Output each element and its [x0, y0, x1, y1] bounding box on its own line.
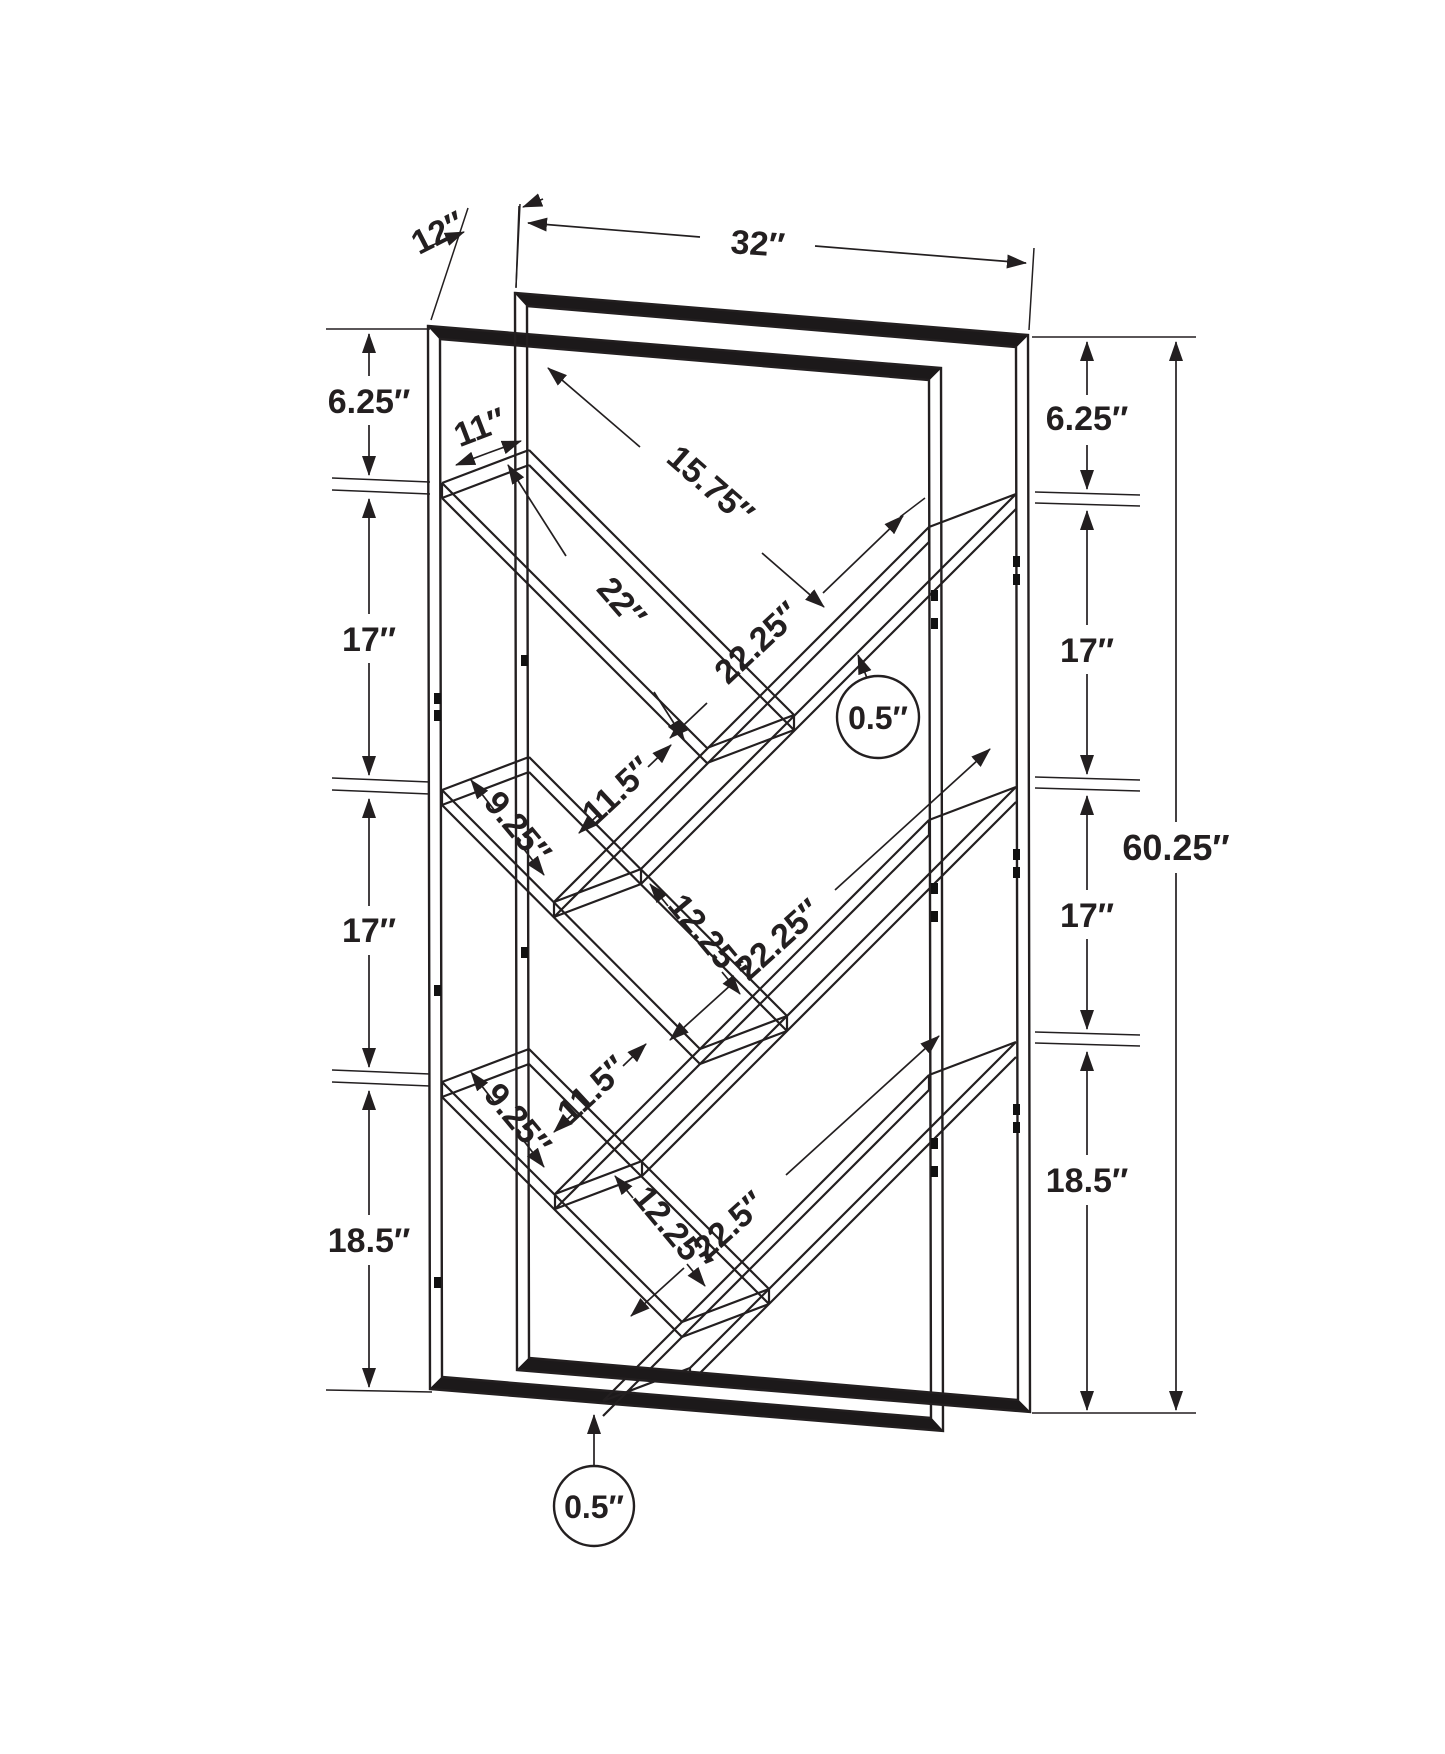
dim-1575-arrow [548, 368, 640, 447]
dim-2225m-arrow [835, 749, 990, 890]
left-dimension-chain: 6.25″ 17″ 17″ 18.5″ [326, 329, 432, 1392]
dim-label-left-1: 17″ [342, 621, 396, 659]
dim-1575-arrow [762, 553, 824, 607]
joint-mark [1013, 867, 1020, 878]
depth-dim-arrow-right [523, 199, 543, 207]
joint-mark [931, 1138, 938, 1149]
dim-2225-arrow [670, 703, 707, 738]
dim-height-60-25: 60.25″ [1122, 342, 1229, 1410]
front-frame-inner [527, 306, 1018, 1400]
joint-mark [434, 693, 441, 704]
dim-label-left-3: 18.5″ [328, 1222, 410, 1260]
dim-115-arrow [648, 745, 671, 767]
front-frame-outer [515, 293, 1030, 1412]
dim-label-height: 60.25″ [1122, 827, 1229, 868]
dims-top-shelf: 11″ 22″ 15.75″ 22.25″ 11.5″ 0.5″ [449, 368, 925, 833]
joint-mark [931, 1166, 938, 1177]
joint-mark [931, 911, 938, 922]
joint-mark [434, 1277, 441, 1288]
joint-mark [1013, 556, 1020, 567]
dim-label-right-0: 6.25″ [1046, 400, 1128, 438]
dimension-diagram: 12″ 32″ 6.25″ 17″ 17″ 18.5″ 6.25″ 17″ [0, 0, 1445, 1754]
dim-label-bottom-right-length: 22.5″ [686, 1184, 773, 1267]
dim-label-mid-overhang: 11.5″ [550, 1049, 635, 1132]
dim-2225-ext [900, 498, 925, 517]
dims-mid-shelf: 9.25″ 12.25″ 22.25″ 11.5″ [471, 749, 990, 1132]
joint-mark [1013, 1104, 1020, 1115]
dim-label-depth: 12″ [405, 204, 470, 262]
dim-11-arrow [456, 453, 488, 465]
dim-label-bottom-thickness: 0.5″ [564, 1489, 624, 1525]
dim-225-arrow [786, 1036, 939, 1175]
joint-mark [931, 590, 938, 601]
joint-mark [434, 710, 441, 721]
joint-mark [521, 655, 528, 666]
dim-label-top-width: 11″ [449, 401, 511, 455]
drawing-canvas: 12″ 32″ 6.25″ 17″ 17″ 18.5″ 6.25″ 17″ [0, 0, 1445, 1754]
dim-label-top-thickness: 0.5″ [848, 700, 908, 736]
joint-mark [1013, 849, 1020, 860]
dim-label-mid-width: 9.25″ [476, 784, 558, 872]
dim-label-right-3: 18.5″ [1046, 1162, 1128, 1200]
right-chain-ticks [1032, 337, 1196, 1413]
dim-depth-12: 12″ [405, 199, 543, 320]
dim-115b-arrow [623, 1044, 646, 1066]
right-dimension-chain: 6.25″ 17″ 17″ 18.5″ [1032, 337, 1196, 1413]
dim-label-right-1: 17″ [1060, 632, 1114, 670]
dim-label-mid-right-length: 22.25″ [728, 892, 829, 988]
width-dim-arrow-right [815, 246, 1026, 263]
joint-mark [1013, 574, 1020, 585]
dim-label-top-clearance: 15.75″ [659, 438, 760, 533]
dim-label-width: 32″ [729, 223, 786, 265]
joint-mark [434, 985, 441, 996]
joint-mark [521, 947, 528, 958]
joint-mark [1013, 1122, 1020, 1133]
dim-label-top-overhang: 11.5″ [575, 750, 660, 833]
joint-mark [931, 618, 938, 629]
dim-label-left-2: 17″ [342, 912, 396, 950]
front-frame [515, 293, 1030, 1412]
joint-mark [931, 883, 938, 894]
dim-label-left-0: 6.25″ [328, 383, 410, 421]
back-frame-bottom-tube [430, 1377, 943, 1431]
width-dim-arrow-left [528, 223, 700, 237]
dim-label-right-2: 17″ [1060, 897, 1114, 935]
dim-225-arrow [631, 1268, 684, 1316]
dim-2225m-arrow [670, 983, 733, 1040]
